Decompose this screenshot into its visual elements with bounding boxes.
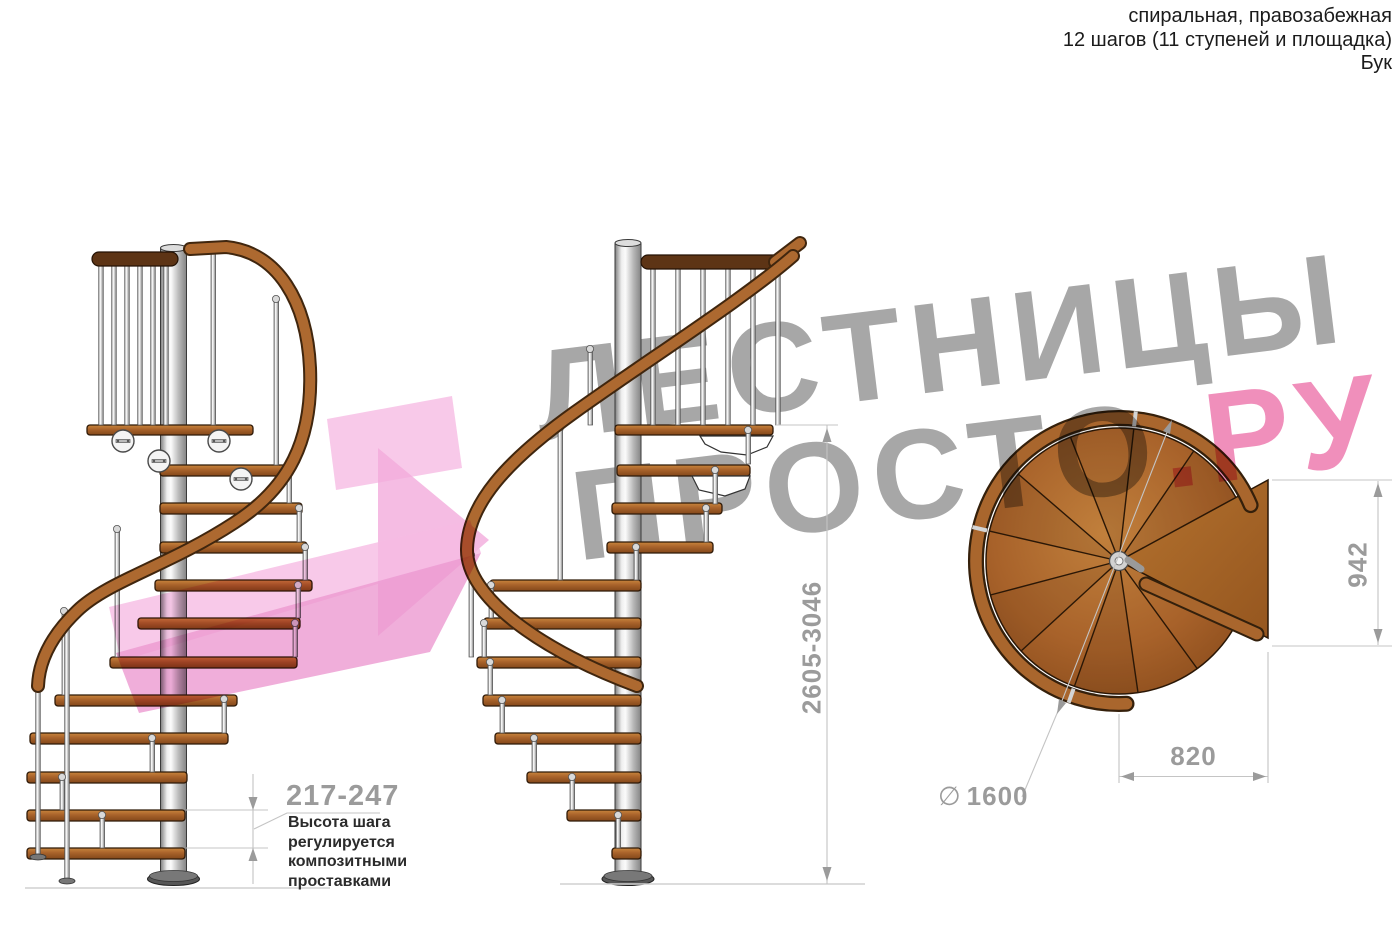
title-type: спиральная, правозабежная: [1063, 5, 1392, 29]
dim-step-height-label: 217-247: [286, 780, 399, 813]
dim-step-width-label: 820: [1119, 741, 1268, 772]
dim-diameter-label: ∅1600: [938, 781, 1029, 812]
dimension-lines: [0, 0, 1400, 951]
title-steps: 12 шагов (11 ступеней и площадка): [1063, 29, 1392, 53]
step-height-note: Высота шага регулируется композитными пр…: [288, 813, 407, 891]
dim-942-lines: [1272, 480, 1392, 646]
ground-lines: [25, 884, 865, 888]
diameter-icon: ∅: [938, 781, 962, 811]
title-material: Бук: [1063, 52, 1392, 76]
title-block: спиральная, правозабежная 12 шагов (11 с…: [1063, 5, 1392, 76]
dim-landing-depth-label: 942: [1343, 465, 1374, 665]
dim-total-height-label: 2605-3046: [797, 548, 828, 748]
